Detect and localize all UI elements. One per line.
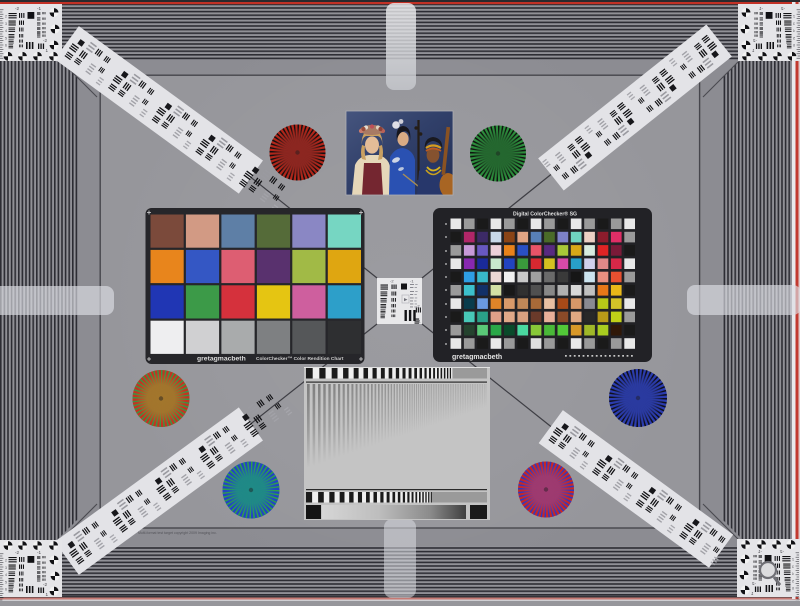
svg-text:-2: -2 — [15, 6, 20, 11]
svg-text:-1: -1 — [757, 549, 762, 554]
svg-text:6: 6 — [5, 44, 7, 48]
svg-text:3: 3 — [5, 22, 7, 26]
svg-text:-2: -2 — [779, 549, 784, 554]
svg-text:Digital ColorChecker® SG: Digital ColorChecker® SG — [513, 211, 577, 218]
svg-text:1: 1 — [752, 48, 755, 53]
svg-text:-1: -1 — [37, 550, 42, 555]
svg-text:1: 1 — [46, 592, 49, 597]
svg-text:3: 3 — [5, 566, 7, 570]
svg-text:-2: -2 — [752, 38, 757, 43]
svg-text:4: 4 — [793, 29, 795, 33]
svg-text:3: 3 — [792, 565, 794, 569]
svg-text:5: 5 — [793, 36, 795, 40]
svg-text:5: 5 — [5, 36, 7, 40]
svg-text:1: 1 — [751, 591, 754, 596]
svg-text:6: 6 — [793, 44, 795, 48]
svg-text:2: 2 — [5, 559, 7, 563]
svg-text:4: 4 — [5, 573, 7, 577]
svg-text:Multi-format test target copyr: Multi-format test target copyright 2009 … — [138, 531, 217, 535]
svg-text:5: 5 — [792, 579, 794, 583]
svg-text:-2: -2 — [780, 6, 785, 11]
svg-text:gretagmacbeth: gretagmacbeth — [197, 356, 246, 363]
svg-text:gretagmacbeth: gretagmacbeth — [452, 354, 502, 361]
svg-text:1: 1 — [46, 48, 49, 53]
svg-text:-2: -2 — [43, 582, 48, 587]
svg-text:-2: -2 — [43, 38, 48, 43]
svg-text:6: 6 — [5, 588, 7, 592]
svg-text:3: 3 — [793, 22, 795, 26]
svg-text:4: 4 — [792, 572, 794, 576]
svg-text:-1: -1 — [37, 6, 42, 11]
svg-text:2: 2 — [792, 558, 794, 562]
svg-text:-2: -2 — [751, 581, 756, 586]
svg-text:6: 6 — [792, 587, 794, 591]
svg-text:-2: -2 — [15, 550, 20, 555]
svg-text:2: 2 — [793, 15, 795, 19]
svg-text:4: 4 — [5, 29, 7, 33]
svg-text:-1: -1 — [758, 6, 763, 11]
svg-text:5: 5 — [5, 580, 7, 584]
svg-text:2: 2 — [5, 15, 7, 19]
svg-text:ColorChecker™ Color Rendition: ColorChecker™ Color Rendition Chart — [256, 356, 344, 362]
